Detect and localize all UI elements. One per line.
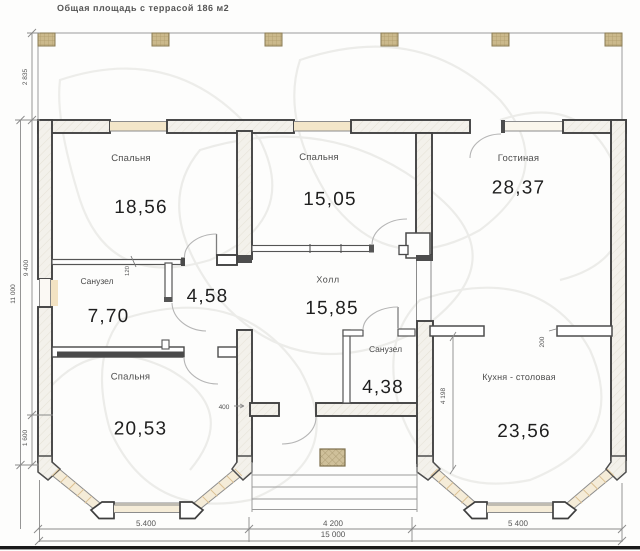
svg-text:7,70: 7,70 (88, 306, 130, 327)
svg-text:11 000: 11 000 (10, 284, 17, 304)
svg-text:18,56: 18,56 (114, 197, 168, 218)
svg-text:4 198: 4 198 (440, 387, 447, 404)
svg-text:Спальня: Спальня (299, 152, 339, 163)
svg-text:4 200: 4 200 (323, 519, 344, 528)
svg-text:4,58: 4,58 (187, 286, 229, 307)
svg-text:Холл: Холл (316, 275, 339, 285)
svg-text:400: 400 (219, 404, 230, 411)
svg-text:Общая площадь с террасой 186 м: Общая площадь с террасой 186 м2 (57, 3, 229, 13)
svg-text:Санузел: Санузел (369, 344, 402, 354)
svg-text:2 835: 2 835 (22, 68, 29, 85)
svg-text:120: 120 (124, 265, 131, 276)
svg-text:9 400: 9 400 (23, 259, 30, 276)
svg-text:1 600: 1 600 (22, 429, 29, 446)
svg-text:Спальня: Спальня (111, 372, 151, 383)
svg-text:20,53: 20,53 (114, 419, 168, 440)
svg-text:200: 200 (539, 336, 546, 347)
svg-text:28,37: 28,37 (492, 178, 546, 199)
svg-text:Кухня - столовая: Кухня - столовая (482, 372, 556, 382)
svg-text:5.400: 5.400 (136, 519, 157, 528)
svg-text:Гостиная: Гостиная (498, 153, 539, 164)
svg-text:Санузел: Санузел (80, 276, 113, 286)
svg-text:Спальня: Спальня (111, 153, 151, 164)
svg-text:4,38: 4,38 (362, 377, 404, 398)
svg-text:15,85: 15,85 (305, 298, 359, 319)
svg-text:15,05: 15,05 (303, 189, 357, 210)
svg-text:15 000: 15 000 (321, 530, 346, 539)
svg-text:5 400: 5 400 (508, 519, 529, 528)
svg-text:23,56: 23,56 (497, 421, 551, 442)
